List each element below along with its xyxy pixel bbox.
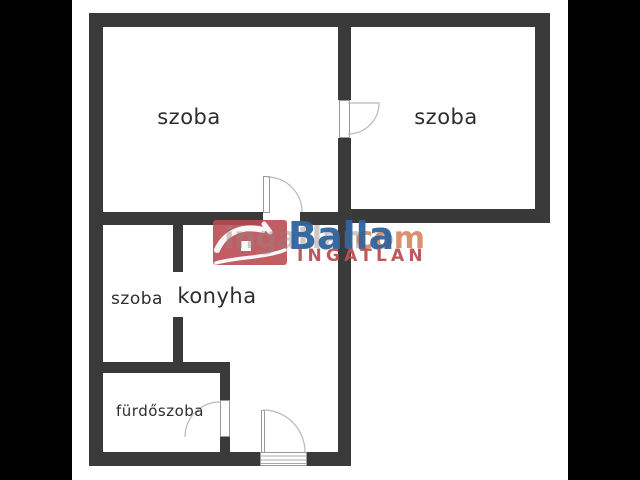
room-label-szoba-top-right: szoba (414, 105, 478, 129)
wall-outer-left (89, 13, 103, 466)
room-label-furdoszoba: fürdőszoba (116, 402, 204, 420)
wall-smallroom-kitchen-upper (173, 225, 183, 272)
door-arc-topleft-room (267, 177, 302, 212)
room-label-konyha: konyha (177, 284, 256, 308)
wall-bathroom-right-upper (220, 373, 230, 400)
house-icon (213, 220, 287, 265)
door-leaf-between-rooms (339, 100, 350, 138)
wall-center-divider-upper (338, 27, 351, 100)
room-label-szoba-top-left: szoba (157, 105, 221, 129)
wall-bathroom-top (103, 362, 230, 373)
wall-outer-bottom-right (307, 452, 351, 466)
entrance-door-threshold (260, 452, 307, 466)
door-leaf-entrance (261, 410, 265, 453)
watermark-brand-subtitle: INGATLAN (297, 248, 427, 265)
logo-red-box (213, 220, 287, 265)
wall-topleft-room-bottom-right (300, 212, 338, 225)
wall-outer-right-upper (535, 27, 550, 223)
wall-topleft-room-bottom-left (103, 212, 263, 225)
door-arc-entrance (263, 410, 305, 452)
letterbox-left-bar (0, 0, 72, 480)
door-leaf-bathroom (220, 400, 230, 437)
house-base-swoosh (216, 250, 285, 263)
wall-smallroom-kitchen-lower (173, 317, 183, 363)
house-window (241, 241, 251, 251)
house-chimney (264, 224, 270, 232)
wall-outer-top (89, 13, 550, 27)
wall-outer-bottom-left (89, 452, 260, 466)
floorplan-image: szoba szoba szoba konyha fürdőszoba inga… (0, 0, 640, 480)
letterbox-right-bar (568, 0, 640, 480)
watermark-tld-text: .com (344, 224, 425, 254)
door-leaf-topleft-room (263, 176, 270, 213)
wall-topright-room-bottom (351, 209, 535, 223)
wall-center-divider-lower (338, 138, 351, 452)
door-arc-between-rooms (348, 103, 379, 134)
room-label-szoba-small: szoba (111, 289, 163, 309)
house-roof-swoosh (217, 228, 263, 250)
wall-bathroom-right-lower (220, 437, 230, 452)
